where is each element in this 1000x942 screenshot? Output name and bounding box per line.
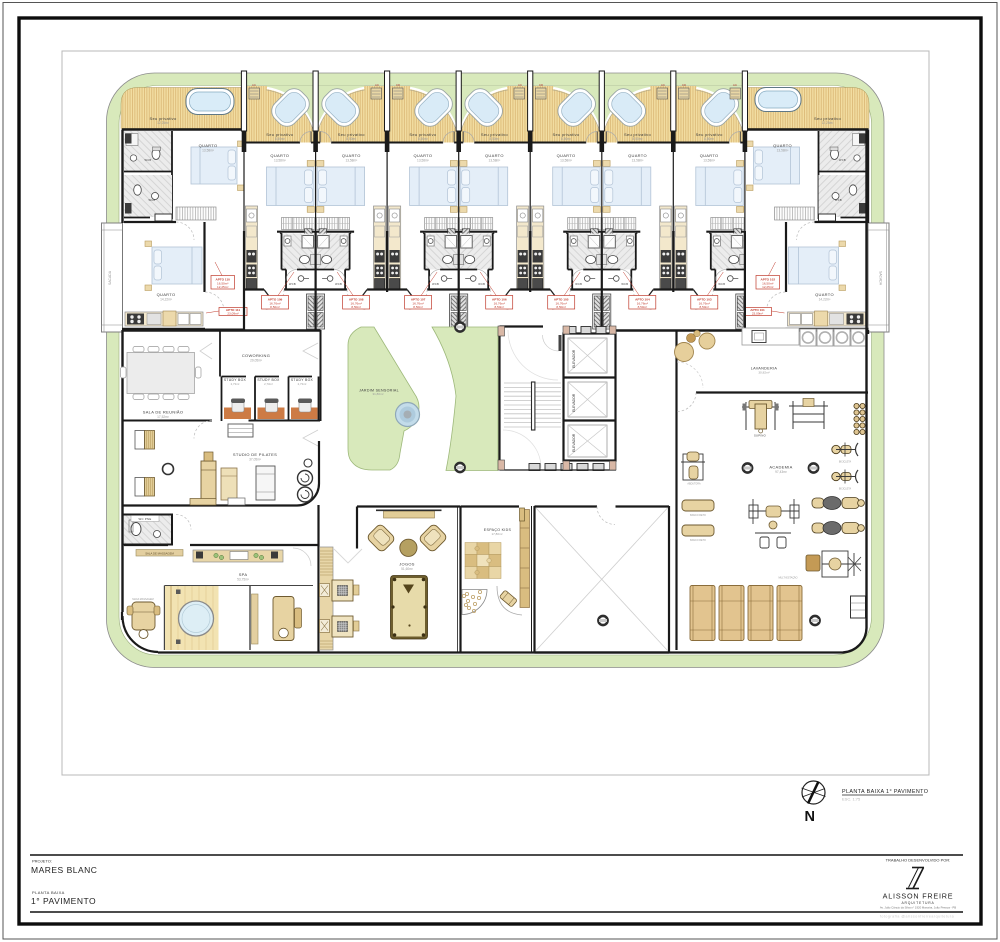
- svg-text:BANCO RETO: BANCO RETO: [690, 514, 706, 517]
- svg-text:ACADEMIA: ACADEMIA: [769, 465, 792, 470]
- svg-text:14,22m²: 14,22m²: [819, 298, 831, 302]
- svg-text:WCB: WCB: [145, 158, 152, 162]
- svg-text:WCB: WCB: [835, 198, 842, 202]
- svg-text:12,25m²: 12,25m²: [822, 121, 834, 125]
- svg-text:SALA DE REUNIÃO: SALA DE REUNIÃO: [143, 410, 184, 415]
- svg-text:8,50m²: 8,50m²: [418, 137, 428, 141]
- svg-text:2,73m²: 2,73m²: [231, 382, 240, 386]
- svg-text:COWORKING: COWORKING: [242, 353, 270, 358]
- svg-text:8,50m²: 8,50m²: [699, 305, 709, 309]
- svg-text:fotografia @alissonfreirearq: fotografia @alissonfreirearquitetura: [880, 915, 954, 919]
- svg-text:Av. João Câncio da Silva n° 19: Av. João Câncio da Silva n° 1920 Manaíra…: [880, 906, 956, 910]
- svg-text:97,43m²: 97,43m²: [775, 470, 787, 474]
- svg-text:QUARTO: QUARTO: [815, 292, 834, 297]
- svg-text:8,50m²: 8,50m²: [270, 305, 280, 309]
- svg-text:ELEVADOR: ELEVADOR: [572, 393, 576, 412]
- svg-text:17,80m²: 17,80m²: [491, 532, 502, 536]
- svg-text:8,50m²: 8,50m²: [351, 305, 361, 309]
- svg-text:13,58m²: 13,58m²: [345, 159, 357, 163]
- svg-text:8,50m²: 8,50m²: [561, 137, 571, 141]
- svg-text:13,58m²: 13,58m²: [703, 159, 715, 163]
- svg-text:BICICLETA: BICICLETA: [839, 461, 852, 464]
- svg-text:14,22m²: 14,22m²: [160, 298, 172, 302]
- svg-text:N: N: [805, 809, 815, 825]
- svg-text:8,50m²: 8,50m²: [413, 305, 423, 309]
- svg-text:PROJETO:: PROJETO:: [32, 859, 52, 864]
- svg-text:QUARTO: QUARTO: [270, 153, 289, 158]
- svg-text:SPA: SPA: [239, 572, 248, 577]
- svg-text:23,09m²: 23,09m²: [227, 312, 238, 316]
- svg-text:QUARTO: QUARTO: [773, 143, 792, 148]
- svg-text:WCB: WCB: [621, 282, 628, 286]
- svg-text:53,75m²: 53,75m²: [237, 577, 249, 581]
- svg-text:30,82m²: 30,82m²: [758, 371, 769, 375]
- svg-text:13,58m²: 13,58m²: [777, 149, 789, 153]
- svg-text:MARES BLANC: MARES BLANC: [31, 865, 97, 875]
- svg-text:ALISSON FREIRE: ALISSON FREIRE: [883, 892, 954, 901]
- svg-text:12,25m²: 12,25m²: [762, 285, 773, 289]
- svg-text:MULTI-ESTAÇÃO: MULTI-ESTAÇÃO: [778, 577, 797, 580]
- svg-text:13,58m²: 13,58m²: [489, 159, 501, 163]
- svg-text:8,50m²: 8,50m²: [633, 137, 643, 141]
- svg-text:BICICLETA: BICICLETA: [839, 488, 852, 491]
- svg-text:8,50m²: 8,50m²: [704, 137, 714, 141]
- svg-text:TRABALHO DESENVOLVIDO POR:: TRABALHO DESENVOLVIDO POR:: [886, 858, 951, 863]
- svg-text:2,73m²: 2,73m²: [298, 382, 307, 386]
- svg-text:8,50m²: 8,50m²: [638, 305, 648, 309]
- svg-text:1° PAVIMENTO: 1° PAVIMENTO: [31, 896, 96, 906]
- svg-text:WCB: WCB: [478, 282, 485, 286]
- svg-text:ELEVADOR: ELEVADOR: [572, 433, 576, 452]
- svg-text:2,73m²: 2,73m²: [264, 382, 273, 386]
- svg-text:QUARTO: QUARTO: [557, 153, 576, 158]
- svg-text:SUPINO: SUPINO: [754, 434, 766, 438]
- svg-text:SALA DE MASSAGEM: SALA DE MASSAGEM: [145, 551, 174, 555]
- svg-text:8,50m²: 8,50m²: [489, 137, 499, 141]
- svg-text:ELEVADOR: ELEVADOR: [572, 349, 576, 368]
- svg-text:QUARTO: QUARTO: [157, 292, 176, 297]
- svg-text:37,05m²: 37,05m²: [249, 457, 261, 461]
- svg-text:WCB: WCB: [718, 282, 725, 286]
- svg-text:13,58m²: 13,58m²: [560, 159, 572, 163]
- svg-text:51,60m²: 51,60m²: [401, 567, 413, 571]
- svg-text:23,09m²: 23,09m²: [752, 312, 763, 316]
- svg-text:SACADA: SACADA: [879, 271, 883, 286]
- svg-text:8,50m²: 8,50m²: [494, 305, 504, 309]
- svg-text:17,52m²: 17,52m²: [157, 415, 169, 419]
- svg-text:QUARTO: QUARTO: [199, 143, 218, 148]
- svg-text:WCB: WCB: [432, 282, 439, 286]
- svg-text:QUARTO: QUARTO: [414, 153, 433, 158]
- svg-text:8,50m²: 8,50m²: [275, 137, 285, 141]
- svg-text:WC PNE: WC PNE: [139, 517, 152, 521]
- svg-text:JOGOS: JOGOS: [399, 562, 415, 567]
- svg-text:8,50m²: 8,50m²: [346, 137, 356, 141]
- svg-text:PLANTA BAIXA 1° PAVIMENTO: PLANTA BAIXA 1° PAVIMENTO: [842, 789, 928, 795]
- svg-text:8,50m²: 8,50m²: [556, 305, 566, 309]
- svg-text:QUARTO: QUARTO: [485, 153, 504, 158]
- svg-text:13,58m²: 13,58m²: [274, 159, 286, 163]
- svg-text:13,58m²: 13,58m²: [632, 159, 644, 163]
- svg-text:12,25m²: 12,25m²: [217, 285, 228, 289]
- svg-text:STUDIO DE PILATES: STUDIO DE PILATES: [233, 452, 277, 457]
- svg-text:PLANTA BAIXA: PLANTA BAIXA: [32, 890, 65, 895]
- svg-text:13,58m²: 13,58m²: [202, 149, 214, 153]
- svg-text:WCB: WCB: [289, 282, 296, 286]
- svg-text:WCB: WCB: [335, 282, 342, 286]
- svg-text:QUARTO: QUARTO: [700, 153, 719, 158]
- svg-text:29,05m²: 29,05m²: [250, 358, 262, 362]
- svg-text:12,25m²: 12,25m²: [157, 121, 169, 125]
- svg-text:WCB: WCB: [149, 198, 156, 202]
- svg-text:QUARTO: QUARTO: [628, 153, 647, 158]
- svg-text:31,80m²: 31,80m²: [372, 392, 383, 396]
- svg-text:MACA MASSAGEM: MACA MASSAGEM: [132, 598, 153, 601]
- svg-text:ESC. 1:75: ESC. 1:75: [842, 797, 861, 802]
- svg-text:ARQUITETURA: ARQUITETURA: [901, 901, 934, 905]
- svg-text:WCB: WCB: [575, 282, 582, 286]
- svg-text:BANCO RETO: BANCO RETO: [690, 539, 706, 542]
- svg-text:ABDUTORA: ABDUTORA: [687, 483, 701, 486]
- svg-text:SACADA: SACADA: [108, 270, 112, 285]
- svg-text:QUARTO: QUARTO: [342, 153, 361, 158]
- svg-text:WCB: WCB: [839, 158, 846, 162]
- svg-text:13,58m²: 13,58m²: [417, 159, 429, 163]
